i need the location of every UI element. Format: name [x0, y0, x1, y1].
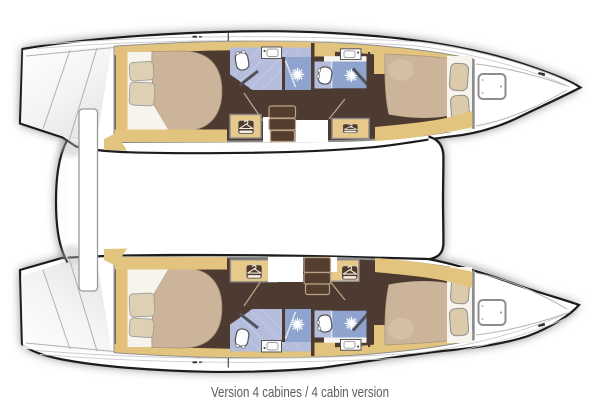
- svg-text:Version 4 cabines / 4 cabin ve: Version 4 cabines / 4 cabin version: [211, 385, 389, 400]
